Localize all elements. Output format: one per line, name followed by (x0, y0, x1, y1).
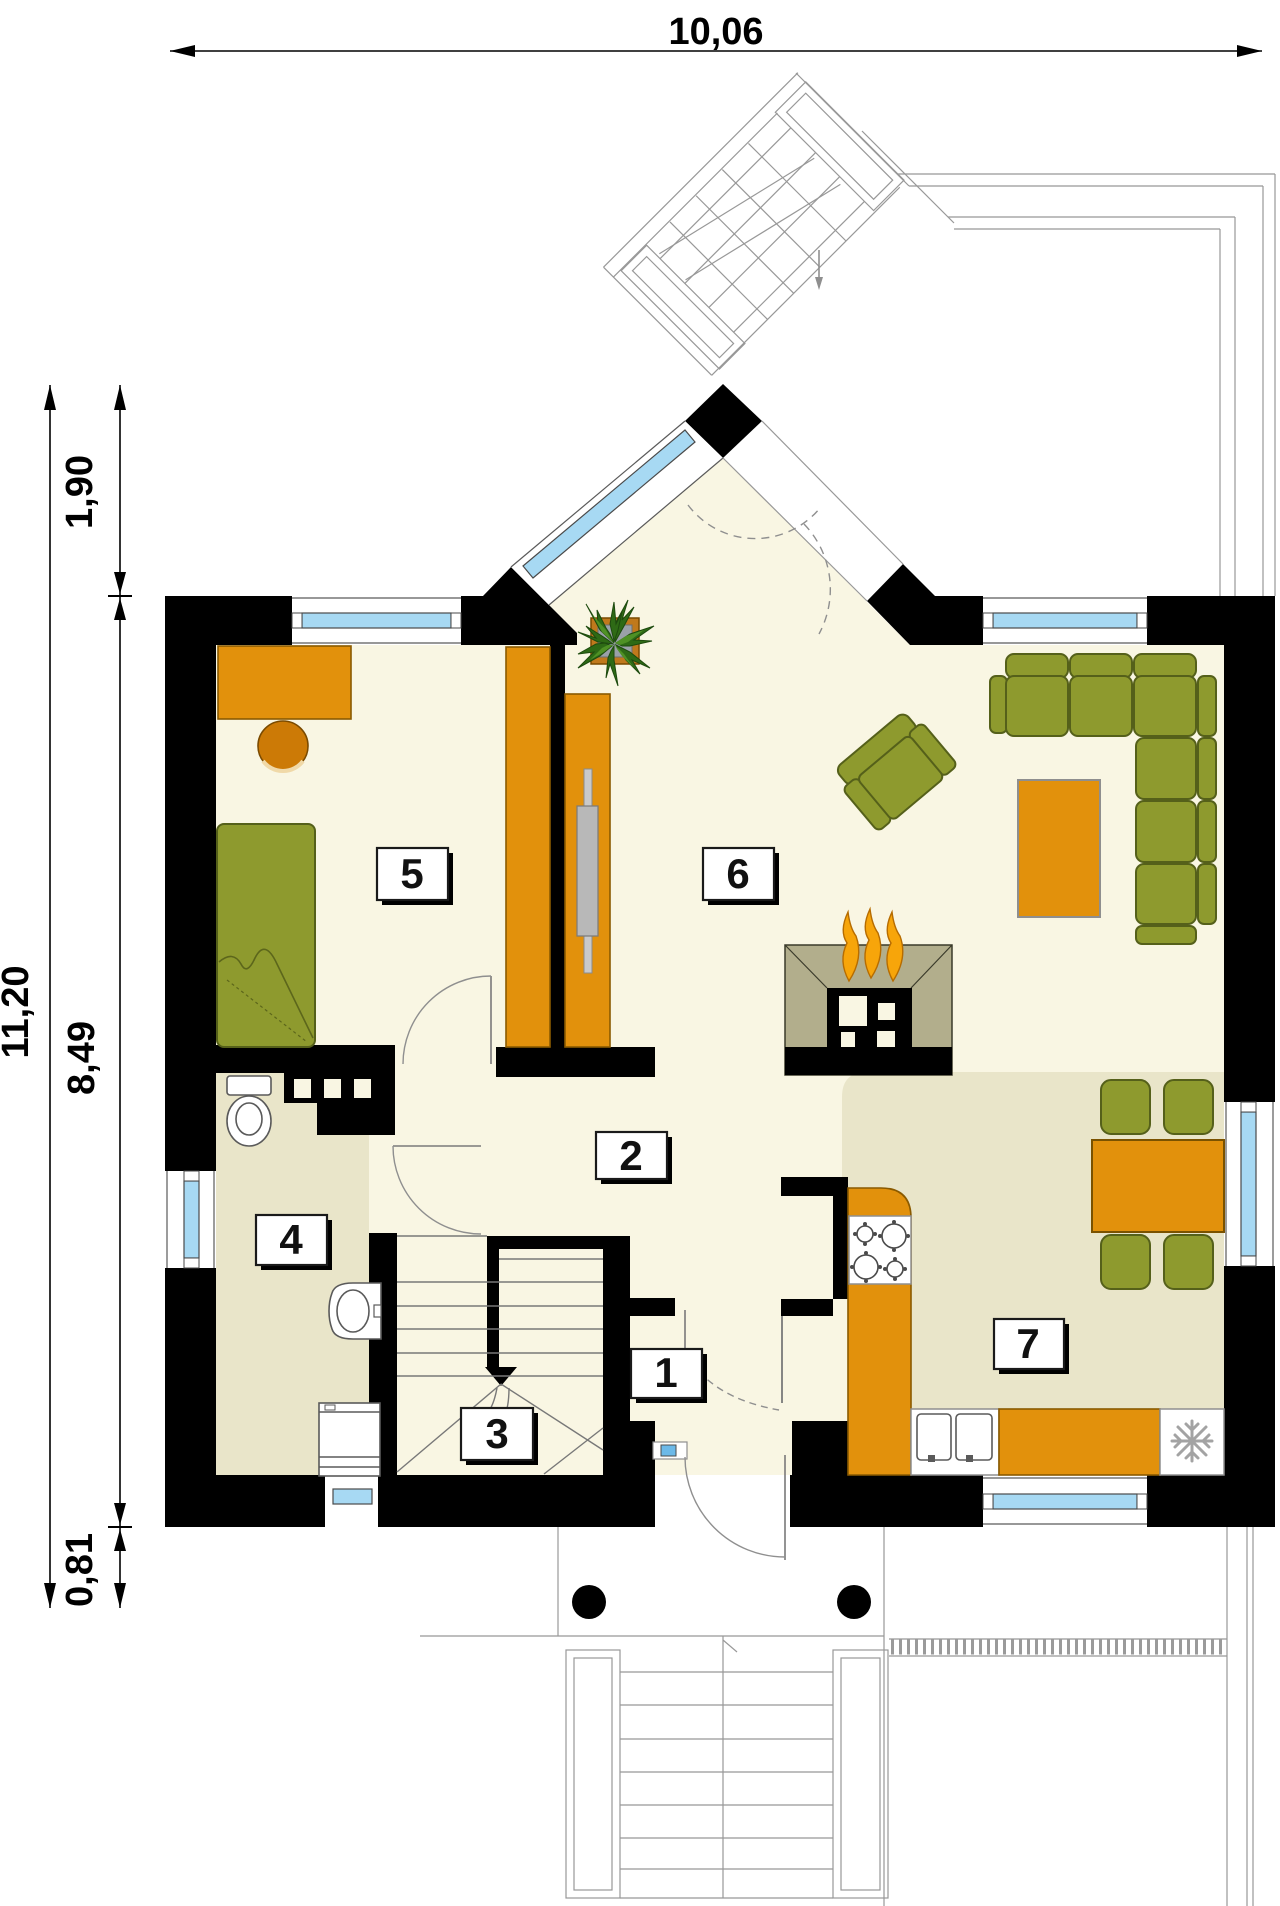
svg-text:3: 3 (485, 1410, 508, 1457)
svg-text:1: 1 (654, 1349, 677, 1396)
svg-text:0,81: 0,81 (59, 1533, 101, 1607)
svg-text:4: 4 (279, 1216, 303, 1263)
svg-text:6: 6 (726, 850, 749, 897)
svg-text:8,49: 8,49 (61, 1021, 103, 1095)
svg-text:1,90: 1,90 (59, 455, 101, 529)
svg-text:11,20: 11,20 (0, 966, 37, 1059)
svg-text:5: 5 (400, 850, 423, 897)
svg-text:2: 2 (619, 1132, 642, 1179)
svg-text:7: 7 (1016, 1320, 1039, 1367)
svg-text:10,06: 10,06 (668, 11, 763, 53)
